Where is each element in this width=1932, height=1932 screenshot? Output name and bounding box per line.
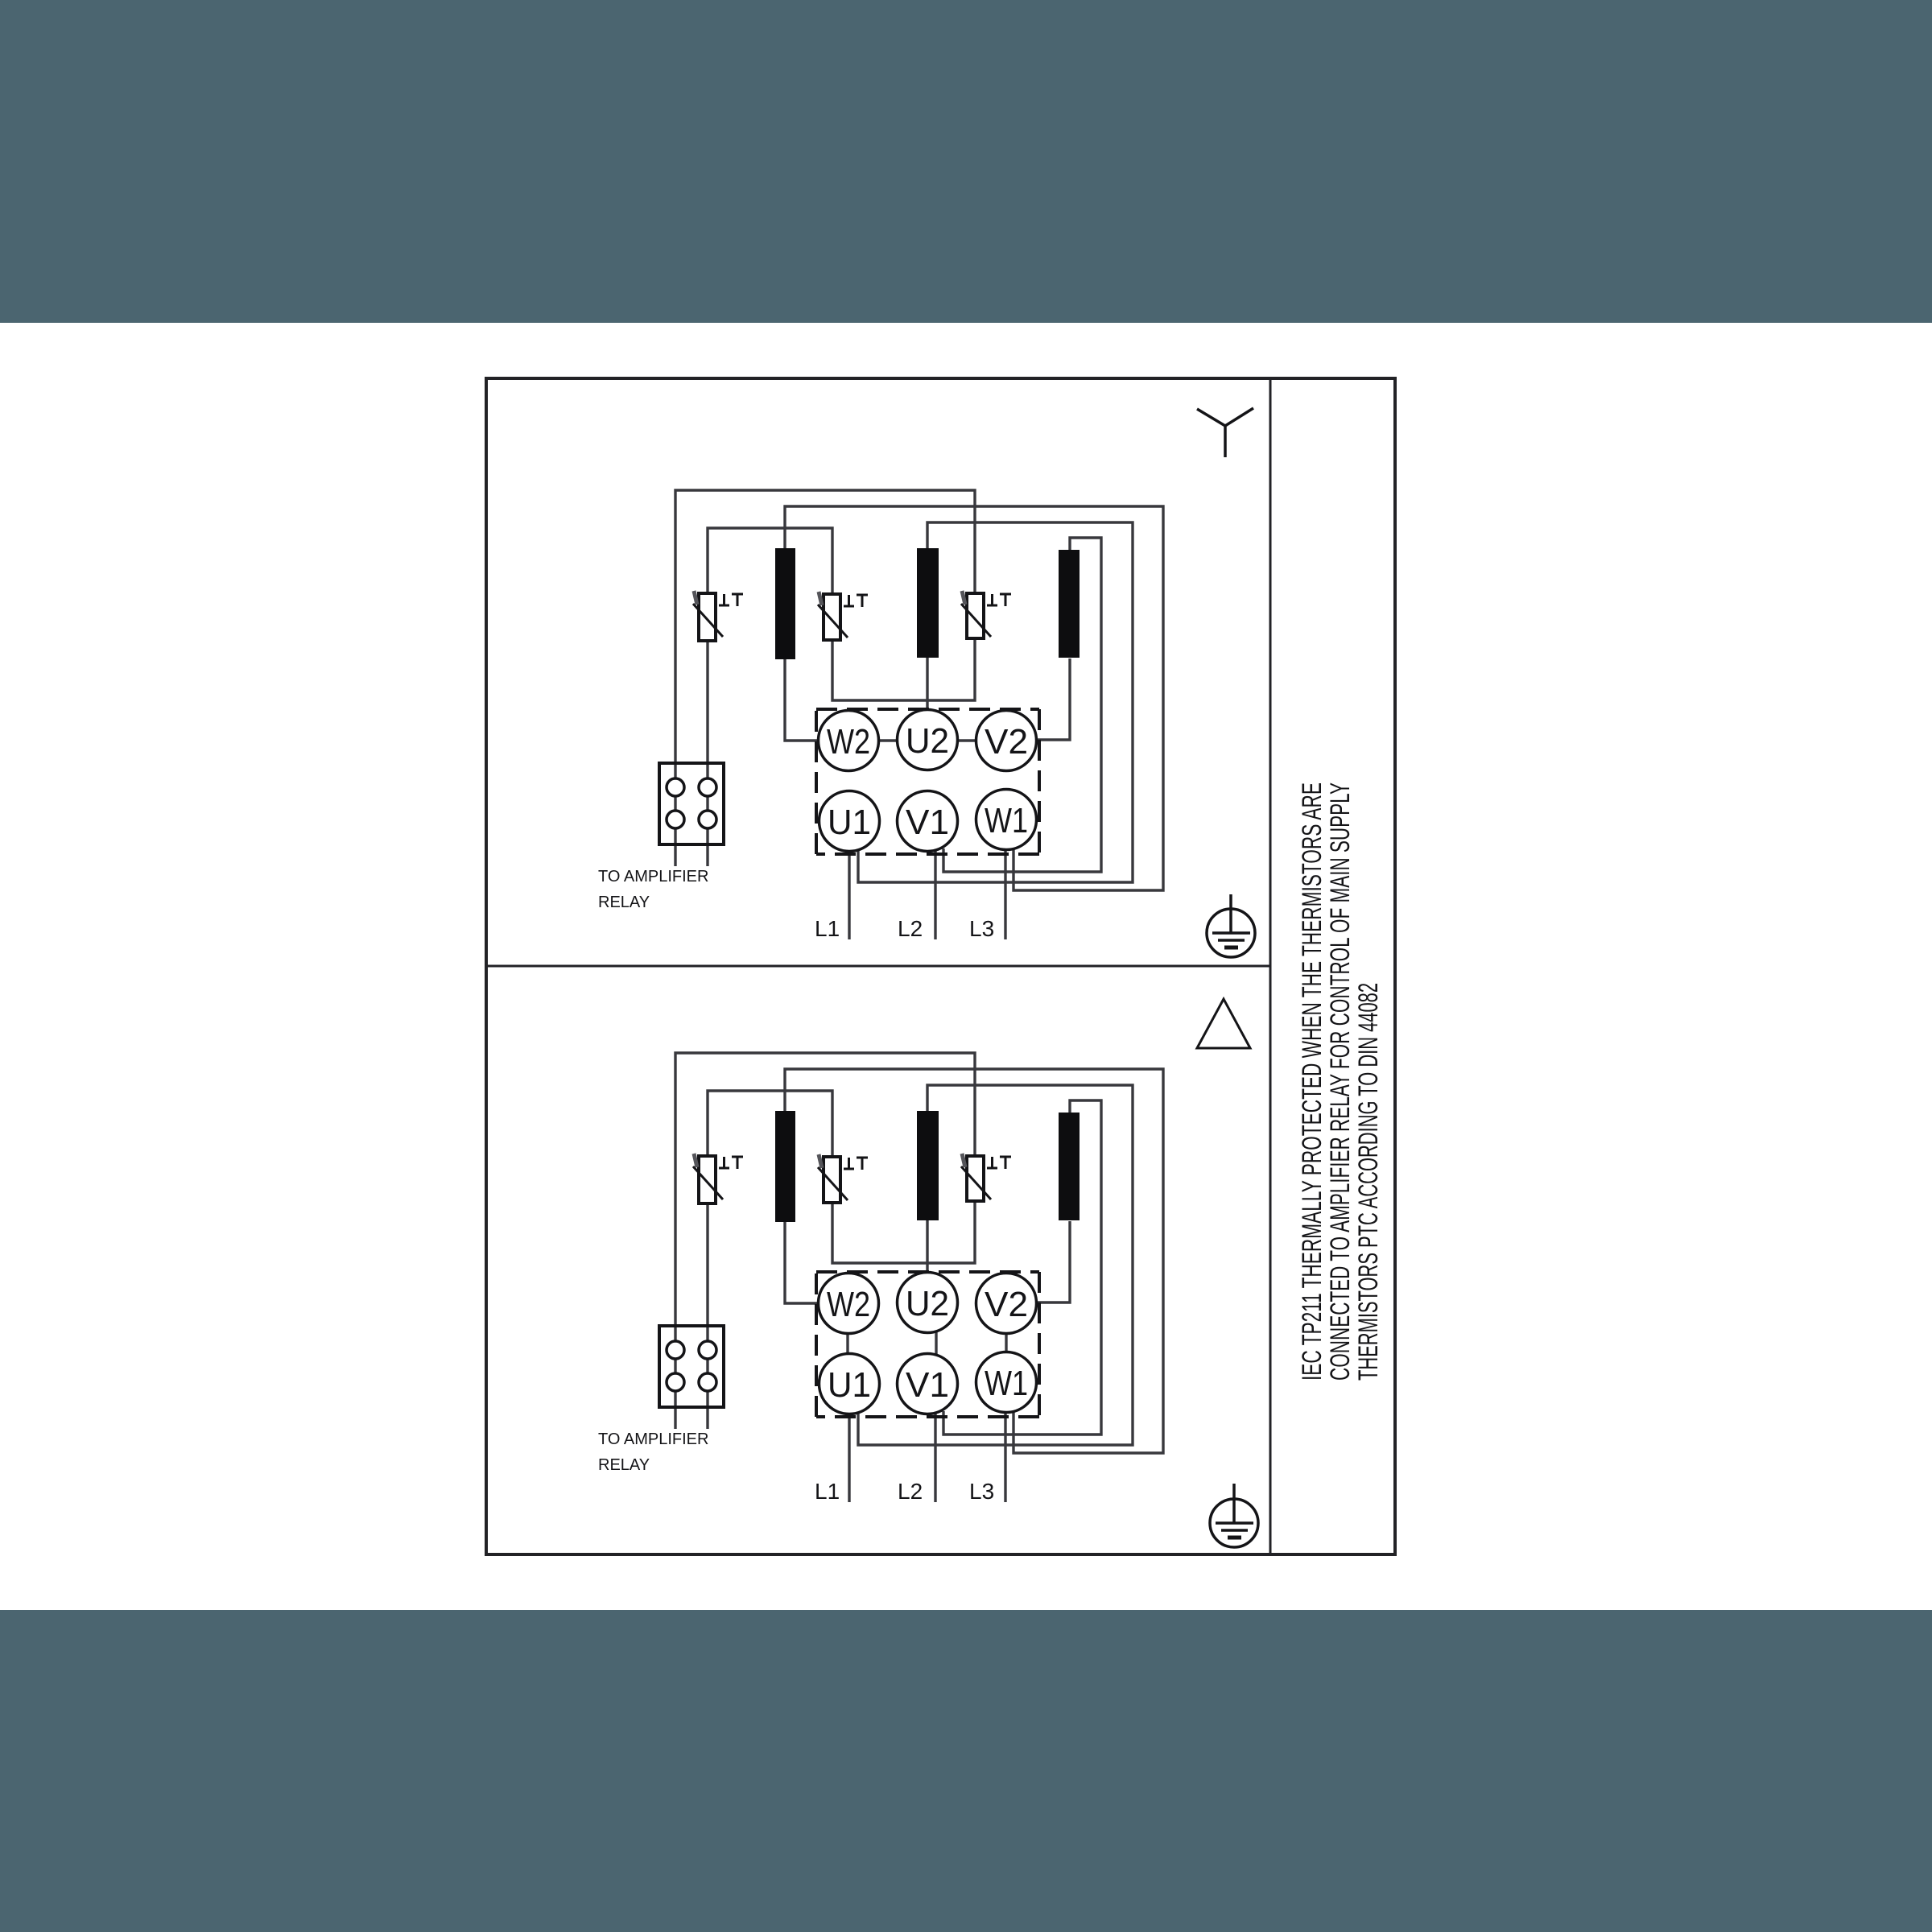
svg-text:W2: W2	[827, 1285, 870, 1324]
svg-text:THERMISTORS PTC ACCORDING TO D: THERMISTORS PTC ACCORDING TO DIN 44082	[1353, 983, 1384, 1381]
svg-text:RELAY: RELAY	[598, 894, 650, 911]
svg-text:IEC TP211 THERMALLY PROTECTED: IEC TP211 THERMALLY PROTECTED WHEN THE T…	[1297, 782, 1327, 1381]
svg-text:CONNECTED TO AMPLIFIER RELAY F: CONNECTED TO AMPLIFIER RELAY FOR CONTROL…	[1325, 782, 1356, 1381]
svg-text:L1: L1	[815, 916, 840, 941]
svg-text:U2: U2	[906, 1284, 949, 1323]
svg-text:V2: V2	[985, 1285, 1028, 1324]
svg-text:W1: W1	[985, 801, 1028, 840]
svg-text:TO AMPLIFIER: TO AMPLIFIER	[598, 1430, 708, 1448]
svg-text:U1: U1	[828, 803, 871, 842]
svg-text:RELAY: RELAY	[598, 1456, 650, 1474]
svg-text:V1: V1	[906, 803, 949, 842]
svg-text:U2: U2	[906, 721, 949, 761]
svg-text:L1: L1	[815, 1479, 840, 1504]
svg-text:W1: W1	[985, 1364, 1028, 1403]
svg-text:W2: W2	[827, 722, 870, 762]
svg-text:V1: V1	[906, 1365, 949, 1405]
svg-text:TO AMPLIFIER: TO AMPLIFIER	[598, 868, 708, 885]
svg-text:U1: U1	[828, 1365, 871, 1405]
svg-text:L2: L2	[898, 1479, 923, 1504]
svg-text:L2: L2	[898, 916, 923, 941]
svg-text:L3: L3	[969, 916, 994, 941]
svg-text:L3: L3	[969, 1479, 994, 1504]
svg-text:V2: V2	[985, 722, 1028, 762]
